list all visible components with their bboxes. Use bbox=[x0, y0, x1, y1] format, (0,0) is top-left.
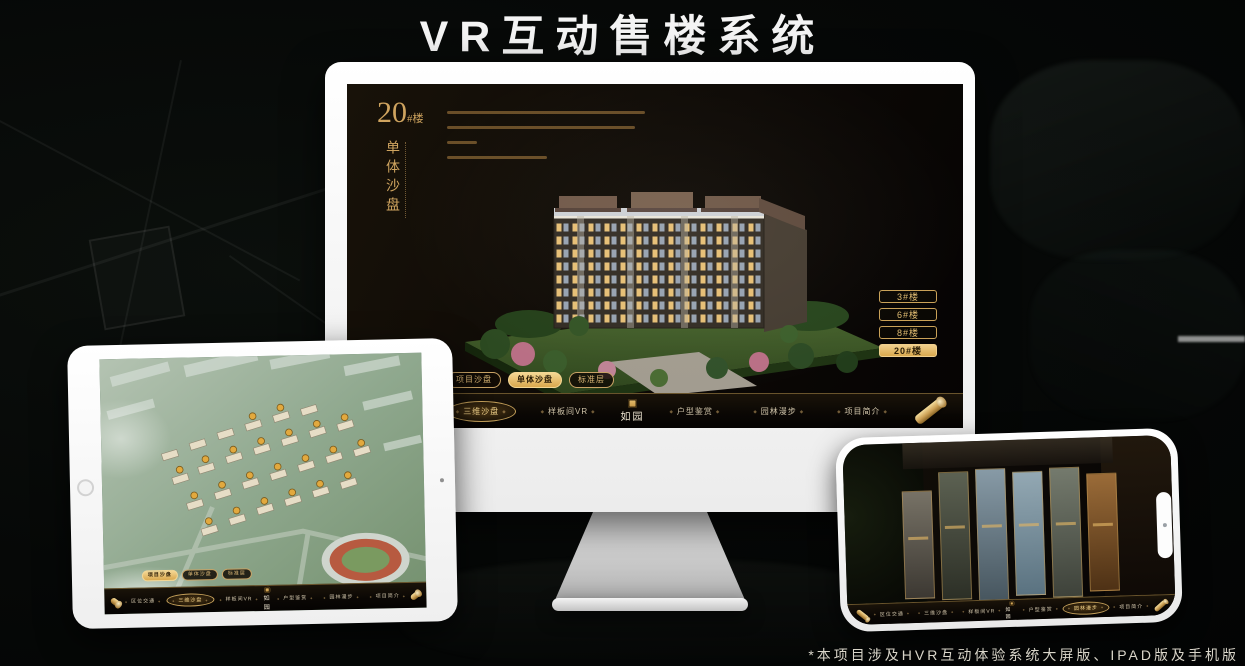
phone-camera-icon bbox=[1162, 523, 1166, 527]
nav-garden-walk[interactable]: 园林漫步 bbox=[318, 591, 364, 603]
phone-device: 区位交通 三维沙盘 样板间VR 如园 户型鉴赏 园林漫步 项目简介 bbox=[835, 428, 1183, 633]
gallery-panel[interactable] bbox=[902, 490, 935, 599]
bg-plaque-shape bbox=[89, 226, 186, 331]
floor-button-8[interactable]: 8#楼 bbox=[879, 326, 937, 339]
ipad-camera-icon bbox=[440, 478, 444, 482]
scroll-menu-icon[interactable] bbox=[913, 397, 946, 426]
nav-garden-walk[interactable]: 园林漫步 bbox=[1063, 600, 1110, 614]
phone-screen: 区位交通 三维沙盘 样板间VR 如园 户型鉴赏 园林漫步 项目简介 bbox=[842, 435, 1175, 625]
nav-unit-plans[interactable]: 户型鉴赏 bbox=[1018, 603, 1063, 615]
panel-caption-bar bbox=[1056, 522, 1076, 526]
nav-unit-plans[interactable]: 户型鉴赏 bbox=[662, 402, 729, 421]
floor-button-3[interactable]: 3#楼 bbox=[879, 290, 937, 303]
sandtable-subtabs: 项目沙盘 单体沙盘 标准层 bbox=[447, 372, 614, 388]
footnote-text: *本项目涉及HVR互动体验系统大屏版、IPAD版及手机版 bbox=[808, 645, 1239, 665]
tab-standard-floor[interactable]: 标准层 bbox=[569, 372, 614, 388]
subtitle-ornament bbox=[405, 142, 406, 218]
ipad-tab-standard-floor[interactable]: 标准层 bbox=[222, 568, 252, 580]
nav-showroom-vr[interactable]: 样板间VR bbox=[533, 402, 604, 421]
gallery-panel[interactable] bbox=[1049, 467, 1083, 598]
gallery-panel[interactable] bbox=[1012, 471, 1046, 596]
bg-map-road bbox=[229, 255, 328, 325]
ipad-tab-single-sandtable[interactable]: 单体沙盘 bbox=[182, 569, 218, 581]
ipad-navbar: 区位交通 三维沙盘 样板间VR 如园 户型鉴赏 园林漫步 项目简介 bbox=[104, 582, 426, 615]
nav-showroom-vr[interactable]: 样板间VR bbox=[214, 593, 263, 605]
phone-notch bbox=[1156, 492, 1173, 558]
ipad-home-button[interactable] bbox=[77, 479, 94, 496]
brand-logo-text: 如园 bbox=[264, 592, 273, 610]
gallery-panel[interactable] bbox=[975, 468, 1009, 601]
description-line bbox=[447, 141, 477, 144]
floor-button-6[interactable]: 6#楼 bbox=[879, 308, 937, 321]
block-title: 20#楼 bbox=[377, 96, 424, 130]
nav-project-intro[interactable]: 项目简介 bbox=[1109, 600, 1154, 612]
block-subtitle: 单体沙盘 bbox=[381, 140, 401, 216]
block-number: 20 bbox=[377, 96, 407, 129]
building-render bbox=[459, 156, 889, 396]
panel-caption-bar bbox=[945, 525, 965, 529]
gallery-panel[interactable] bbox=[1086, 473, 1120, 592]
nav-project-intro[interactable]: 项目简介 bbox=[364, 590, 410, 602]
page: VR互动售楼系统 20#楼 单体沙盘 bbox=[0, 0, 1245, 666]
nav-location-traffic[interactable]: 区位交通 bbox=[870, 608, 915, 620]
brand-logo: 如园 bbox=[621, 399, 645, 423]
nav-location-traffic[interactable]: 区位交通 bbox=[120, 595, 166, 607]
nav-showroom-vr[interactable]: 样板间VR bbox=[958, 605, 1006, 617]
brand-logo-text: 如园 bbox=[621, 408, 645, 423]
brand-seal-icon bbox=[628, 399, 637, 408]
floor-button-20[interactable]: 20#楼 bbox=[879, 344, 937, 357]
gallery-panel[interactable] bbox=[938, 471, 972, 600]
bg-river-photo bbox=[1030, 250, 1245, 420]
ipad-device: 项目沙盘 单体沙盘 标准层 区位交通 三维沙盘 样板间VR 如园 户型鉴赏 园林… bbox=[67, 338, 458, 629]
panel-caption-bar bbox=[982, 524, 1002, 528]
panel-caption-bar bbox=[908, 536, 928, 540]
block-unit: #楼 bbox=[407, 113, 424, 125]
nav-3d-sandtable[interactable]: 三维沙盘 bbox=[447, 401, 516, 422]
tab-project-sandtable[interactable]: 项目沙盘 bbox=[447, 372, 501, 388]
brand-logo: 如园 bbox=[1005, 600, 1019, 619]
panel-caption-bar bbox=[1019, 523, 1039, 527]
bg-light-streak bbox=[1178, 336, 1245, 342]
nav-3d-sandtable[interactable]: 三维沙盘 bbox=[914, 606, 959, 618]
floor-button-group: 3#楼 6#楼 8#楼 20#楼 bbox=[879, 290, 937, 357]
brand-logo: 如园 bbox=[263, 586, 272, 610]
description-line bbox=[447, 111, 645, 114]
nav-3d-sandtable[interactable]: 三维沙盘 bbox=[166, 593, 215, 607]
bg-city-photo bbox=[990, 60, 1245, 260]
monitor-stand-base bbox=[552, 598, 748, 611]
ipad-screen: 项目沙盘 单体沙盘 标准层 区位交通 三维沙盘 样板间VR 如园 户型鉴赏 园林… bbox=[99, 353, 426, 615]
scroll-menu-icon[interactable] bbox=[856, 608, 870, 621]
nav-garden-walk[interactable]: 园林漫步 bbox=[745, 402, 812, 421]
brand-logo-text: 如园 bbox=[1005, 605, 1019, 619]
tab-single-sandtable[interactable]: 单体沙盘 bbox=[508, 372, 562, 388]
description-line bbox=[447, 126, 635, 129]
nav-unit-plans[interactable]: 户型鉴赏 bbox=[272, 592, 318, 604]
scroll-menu-icon[interactable] bbox=[410, 590, 421, 601]
gallery-panels bbox=[901, 463, 1120, 604]
monitor-stand-neck bbox=[555, 512, 745, 600]
page-title: VR互动售楼系统 bbox=[0, 2, 1245, 64]
panel-caption-bar bbox=[1093, 522, 1113, 526]
ipad-tab-project-sandtable[interactable]: 项目沙盘 bbox=[142, 570, 178, 582]
nav-project-intro[interactable]: 项目简介 bbox=[829, 402, 896, 421]
scroll-menu-icon[interactable] bbox=[1153, 599, 1167, 612]
ipad-subtabs: 项目沙盘 单体沙盘 标准层 bbox=[142, 568, 252, 581]
